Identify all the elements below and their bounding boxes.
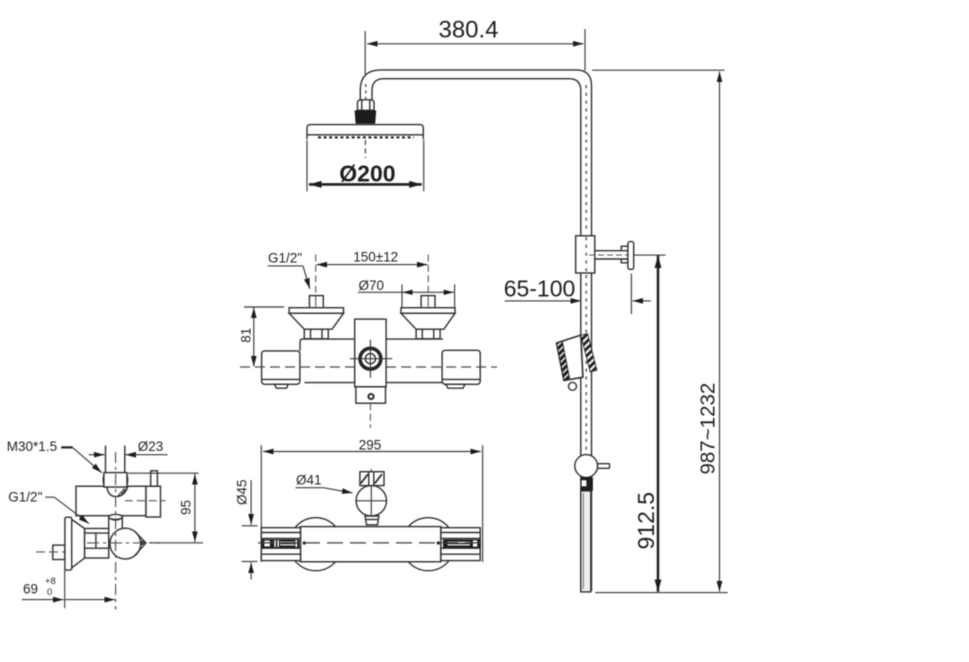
svg-text:65-100: 65-100 [504, 276, 576, 302]
svg-text:380.4: 380.4 [438, 17, 498, 44]
svg-text:Ø200: Ø200 [339, 161, 395, 187]
svg-text:+8: +8 [45, 576, 56, 587]
svg-text:95: 95 [179, 500, 194, 515]
svg-text:M30*1.5: M30*1.5 [7, 439, 57, 454]
svg-text:0: 0 [47, 587, 52, 598]
svg-text:81: 81 [239, 328, 254, 343]
svg-text:69: 69 [23, 582, 38, 597]
svg-text:Ø70: Ø70 [359, 278, 385, 293]
svg-text:Ø41: Ø41 [296, 473, 322, 488]
svg-text:Ø23: Ø23 [138, 439, 164, 454]
svg-text:G1/2": G1/2" [268, 250, 302, 265]
svg-text:150±12: 150±12 [353, 249, 398, 264]
svg-text:295: 295 [359, 437, 382, 452]
svg-text:G1/2": G1/2" [8, 489, 42, 504]
svg-text:Ø45: Ø45 [235, 479, 250, 505]
svg-text:912.5: 912.5 [633, 492, 659, 550]
svg-text:987~1232: 987~1232 [697, 383, 720, 475]
